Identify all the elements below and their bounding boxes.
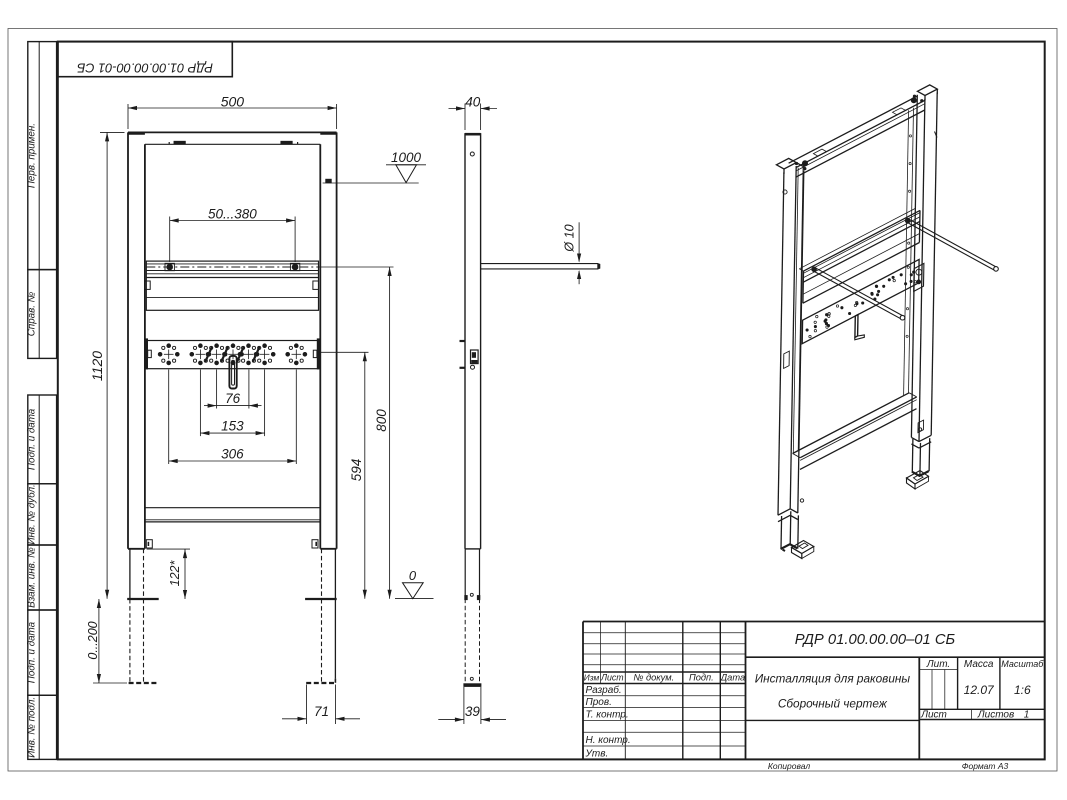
svg-text:306: 306 — [221, 447, 244, 462]
svg-text:Масштаб: Масштаб — [1001, 659, 1044, 669]
svg-text:Разраб.: Разраб. — [586, 684, 622, 696]
svg-text:50...380: 50...380 — [208, 206, 257, 221]
svg-text:РДР 01.00.00.00–01 СБ: РДР 01.00.00.00–01 СБ — [795, 632, 956, 648]
svg-text:Сборочный чертеж: Сборочный чертеж — [778, 697, 888, 711]
svg-text:Масса: Масса — [964, 659, 994, 670]
svg-text:Справ. №: Справ. № — [26, 291, 37, 336]
svg-text:Дата: Дата — [720, 673, 746, 683]
svg-text:Формат А3: Формат А3 — [962, 761, 1009, 771]
svg-text:Лист: Лист — [600, 673, 624, 683]
svg-text:1120: 1120 — [89, 351, 105, 381]
svg-text:594: 594 — [349, 459, 364, 482]
svg-text:Инсталляция для раковины: Инсталляция для раковины — [755, 672, 911, 686]
svg-text:76: 76 — [225, 391, 241, 406]
svg-text:Подп. и дата: Подп. и дата — [26, 408, 37, 470]
svg-text:Перв. примен.: Перв. примен. — [26, 123, 37, 188]
svg-text:39: 39 — [465, 704, 481, 719]
svg-text:0: 0 — [409, 568, 417, 583]
svg-text:Взам. инв. №: Взам. инв. № — [26, 547, 37, 608]
svg-text:Лист: Лист — [920, 709, 947, 720]
svg-text:Утв.: Утв. — [585, 748, 609, 759]
svg-text:Изм: Изм — [584, 673, 600, 683]
svg-text:1000: 1000 — [391, 150, 422, 165]
svg-text:Т. контр.: Т. контр. — [586, 709, 629, 720]
svg-text:12.07: 12.07 — [964, 683, 995, 697]
svg-text:153: 153 — [221, 419, 244, 434]
svg-text:800: 800 — [374, 409, 389, 432]
svg-text:Пров.: Пров. — [586, 697, 612, 708]
svg-text:122*: 122* — [168, 560, 182, 587]
svg-text:Н. контр.: Н. контр. — [586, 735, 631, 746]
svg-text:71: 71 — [314, 704, 329, 719]
svg-text:Листов: Листов — [977, 709, 1014, 720]
svg-text:Подп.: Подп. — [689, 673, 714, 683]
svg-text:Копировал: Копировал — [768, 761, 810, 771]
svg-text:Ø 10: Ø 10 — [563, 224, 577, 252]
svg-text:1:6: 1:6 — [1014, 683, 1031, 697]
svg-text:0...200: 0...200 — [86, 621, 100, 659]
svg-text:РДР 01.00.00.00-01 СБ: РДР 01.00.00.00-01 СБ — [77, 61, 213, 76]
svg-text:Инв. № подл.: Инв. № подл. — [26, 697, 37, 758]
svg-text:Подп. и дата: Подп. и дата — [26, 621, 37, 683]
svg-text:40: 40 — [465, 94, 481, 109]
svg-text:1: 1 — [1024, 709, 1030, 720]
svg-text:Лит.: Лит. — [926, 659, 950, 670]
svg-text:500: 500 — [221, 93, 245, 109]
svg-text:Инв. № дубл.: Инв. № дубл. — [26, 484, 37, 544]
svg-text:№ докум.: № докум. — [633, 673, 674, 683]
